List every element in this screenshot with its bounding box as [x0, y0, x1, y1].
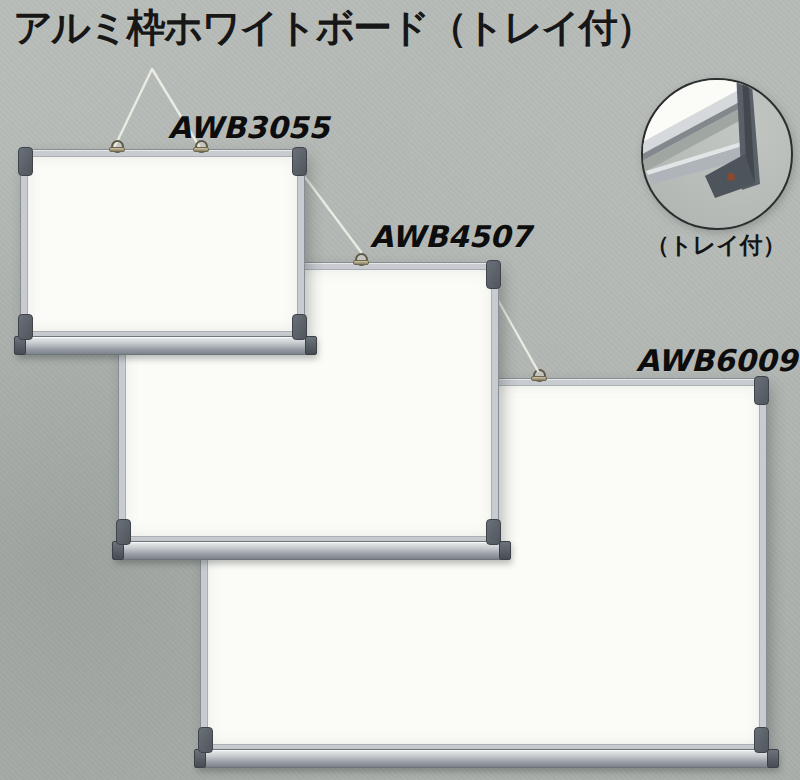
pen-tray [195, 749, 778, 768]
pen-tray [113, 541, 510, 560]
hanging-hook [109, 140, 125, 152]
page-title: アルミ枠ホワイトボード（トレイ付） [13, 2, 653, 55]
corner-cap [18, 147, 33, 176]
tray-end-cap [305, 336, 317, 355]
hook-base [531, 376, 547, 381]
corner-cap [486, 260, 501, 289]
detail-inset-circle [641, 78, 793, 230]
product-code-awb3055: AWB3055 [168, 110, 329, 145]
corner-cap [754, 727, 769, 753]
hanging-hook [531, 369, 547, 381]
hook-base [353, 260, 369, 265]
tray-end-cap [499, 541, 511, 560]
board-surface [27, 156, 298, 332]
product-code-awb4507: AWB4507 [370, 219, 531, 254]
pen-tray [15, 336, 316, 355]
product-code-awb6009: AWB6009 [636, 343, 797, 378]
hook-base [109, 147, 125, 152]
tray-closeup-photo [643, 80, 791, 228]
corner-cap [198, 727, 213, 753]
tray-end-cap [767, 749, 779, 768]
hook-base [193, 147, 209, 152]
corner-cap [486, 519, 501, 545]
whiteboard-awb3055 [20, 149, 305, 339]
inset-caption: （トレイ付） [633, 230, 799, 261]
corner-cap [292, 314, 307, 340]
hanging-hook [353, 253, 369, 265]
corner-cap [18, 314, 33, 340]
corner-cap [292, 147, 307, 176]
catalog-page: アルミ枠ホワイトボード（トレイ付） AWB6009 [0, 0, 800, 780]
corner-cap [116, 519, 131, 545]
corner-cap [754, 376, 769, 405]
